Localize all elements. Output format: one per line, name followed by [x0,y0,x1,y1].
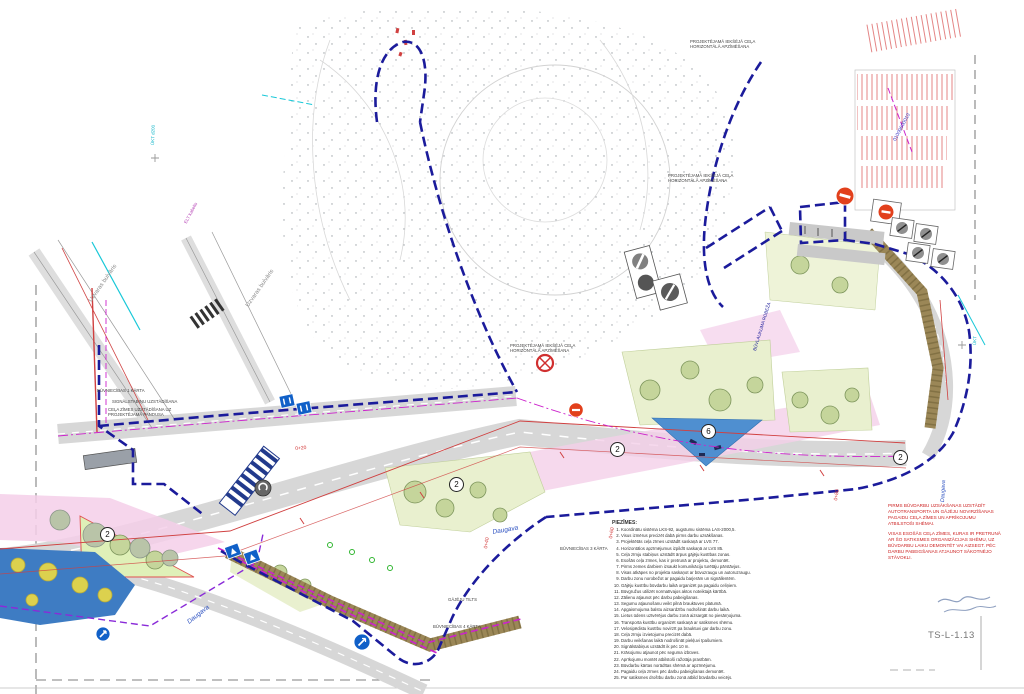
circled-marker: 2 [449,477,464,492]
note-item: Horizontālos apzīmējumus izpildīt saskaņ… [621,546,782,552]
mandatory-direction-sign-icon [96,627,110,641]
end-restriction-sign-icon [914,224,938,245]
note-item: Signālstabiņus uzstādīt ik pēc 10 m. [621,644,782,650]
red-annotation-block: PIRMS BŪVDARBU UZSĀKŠANAS UZSTĀDĪT AUTOT… [888,503,1002,565]
notes-title: PIEZĪMES: [612,520,782,526]
circled-marker: 2 [100,527,115,542]
note-item: Ceļa zīmju izvietojumu precizēt dabā. [621,632,782,638]
drawing-sheet: Uzvaras bulvāris Uzvaras bulvāris Daugav… [0,0,1024,694]
no-entry-sign-icon [569,403,584,418]
note-item: Zālienu atjaunot pēc darbu pabeigšanas. [621,595,782,601]
marker-number: 6 [706,427,710,436]
signature-scribble [938,597,996,612]
red-annotation-paragraph-1: PIRMS BŪVDARBU UZSĀKŠANAS UZSTĀDĪT AUTOT… [888,503,1002,527]
note-item: Būvdarbu kārtas norādītas shēmā ar apzīm… [621,663,782,669]
note-item: Koordinātu sistēma LKS-92, augstumu sist… [621,527,782,533]
label-utility-ukt-2: ŪKT [972,336,977,345]
marker-number: 2 [454,480,458,489]
label-guide-posts: SIGNĀLSTABIŅU UZSTĀDĪŠANA [112,400,177,405]
note-item: Pirms zemes darbiem izsaukt komunikāciju… [621,564,782,570]
label-horizontal-marking-1: PROJEKTĒJAMĀ IEKŠĒJĀ CEĻA HORIZONTĀLĀ AP… [690,40,770,50]
note-item: Darbu veikšanas laikā nodrošināt piekļuv… [621,638,782,644]
label-phase-3: BŪVNIECĪBAS 3 KĀRTA [560,547,608,552]
red-annotation-paragraph-2: VISAS ESOŠĀS CEĻA ZĪMES, KURAS IR PRETRU… [888,531,1002,561]
label-horizontal-marking-2: PROJEKTĒJAMĀ IEKŠĒJĀ CEĻA HORIZONTĀLĀ AP… [668,174,748,184]
park-area [262,6,734,388]
label-phase-4: BŪVNIECĪBAS 4 KĀRTA [433,625,481,630]
note-item: Pagaidu ceļa zīmes pēc darbu pabeigšanas… [621,669,782,675]
note-item: Visus izmērus precizēt dabā pirms darbu … [621,533,782,539]
label-signs-on-ramp: CEĻA ZĪMES UZSTĀDĪŠANA UZ PROJEKTĒJAMĀ P… [108,408,190,418]
note-item: Visas atkāpes no projekta saskaņot ar bū… [621,570,782,576]
marker-number: 2 [898,453,902,462]
marker-number: 2 [105,530,109,539]
note-item: Apgaismojuma balstu aizsardzību nodrošin… [621,607,782,613]
end-restriction-sign-icon [906,243,930,264]
label-phase-1: BŪVNIECĪBAS 1 KĀRTA [97,389,145,394]
circled-marker: 2 [610,442,625,457]
note-item: Gājēju kustību būvdarbu laikā organizēt … [621,583,782,589]
note-item: Ceļa zīmju stabiņus uzstādīt ārpus gājēj… [621,552,782,558]
note-item: Būvgružus utilizēt normatīvajos aktos no… [621,589,782,595]
circled-marker: 2 [893,450,908,465]
note-item: Darbu zonu norobežot ar pagaidu barjerām… [621,576,782,582]
note-item: Esošās ceļa zīmes, kas ir pretrunā ar pr… [621,558,782,564]
note-item: Par satiksmes drošību darbu zonā atbild … [621,675,782,681]
note-item: Krāsojumu atjaunot pēc seguma izbūves. [621,650,782,656]
bridge-deck [83,448,136,469]
two-way-sign-icon [279,394,295,409]
drawing-number: TS-L-1.13 [928,630,975,641]
note-item: Transporta kustību organizēt saskaņā ar … [621,620,782,626]
end-restriction-sign-icon [890,218,914,239]
marker-number: 2 [615,445,619,454]
no-stopping-sign-icon [537,355,553,371]
circled-marker: 6 [701,424,716,439]
label-horizontal-marking-3: PROJEKTĒJAMĀ IEKŠĒJĀ CEĻA HORIZONTĀLĀ AP… [510,344,590,354]
roundabout-sign-icon [255,480,271,496]
note-item: Lietus ūdens uztvērējus darbu zonā aizsa… [621,613,782,619]
note-item: Projektētās ceļa zīmes uzstādīt saskaņā … [621,539,782,545]
mandatory-direction-sign-icon [354,634,370,650]
note-item: Velosipēdistu kustību novirzīt pa braukt… [621,626,782,632]
end-restriction-sign-icon [931,249,955,270]
note-item: Aprīkojumu montēt atbilstoši ražotāja pr… [621,657,782,663]
note-item: Segumu atjaunošanu veikt pilnā brauktuve… [621,601,782,607]
notes-block: PIEZĪMES: Koordinātu sistēma LKS-92, aug… [612,520,782,681]
label-pedestrian-bridge: GĀJĒJU TILTS [448,598,477,603]
two-way-sign-icon [296,401,312,416]
river-label-daugava-3: Daugava [940,480,947,502]
chainage-label: 0+20 [295,445,307,452]
label-utility-ukt-1: ŪKT d200 [150,125,156,145]
notes-list: Koordinātu sistēma LKS-92, augstumu sist… [612,527,782,681]
